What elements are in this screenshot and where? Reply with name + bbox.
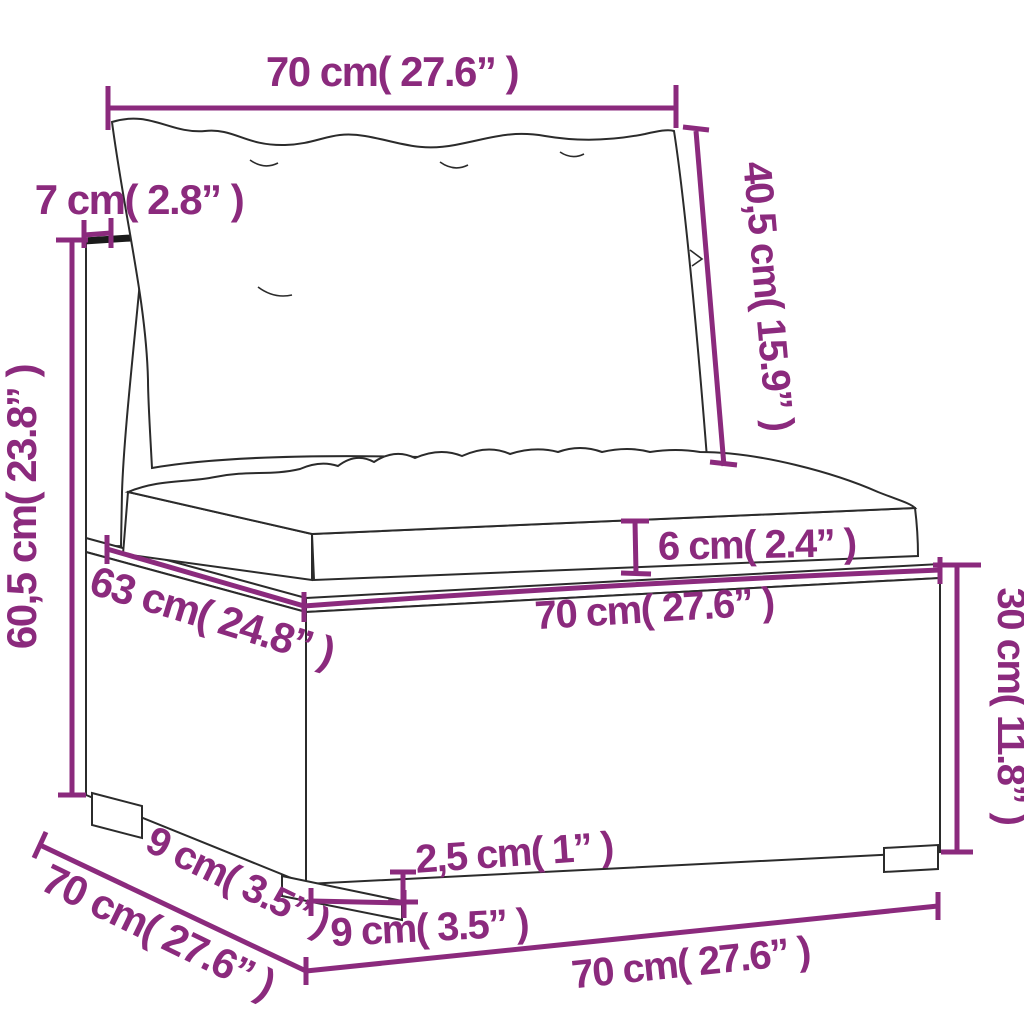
dim-armrest-top-width-label: 7 cm( 2.8” )	[35, 176, 243, 223]
dim-seat-cushion-thickness-tick	[621, 573, 651, 574]
dimension-diagram-page: 70 cm( 27.6” ) 40,5 cm( 15.9” ) 7 cm( 2.…	[0, 0, 1024, 1024]
right-leg	[884, 845, 938, 872]
back-cushion-fold-notch	[690, 250, 702, 266]
dim-base-height: 30 cm( 11.8” )	[933, 565, 1024, 852]
dim-back-cushion-height-tick	[683, 127, 709, 130]
sofa-section-dimension-sketch: 70 cm( 27.6” ) 40,5 cm( 15.9” ) 7 cm( 2.…	[0, 0, 1024, 1024]
dim-back-cushion-height-label: 40,5 cm( 15.9” )	[734, 160, 801, 432]
dim-front-leg-width-label: 9 cm( 3.5” )	[329, 901, 529, 955]
dim-total-height: 60,5 cm( 23.8” )	[0, 240, 88, 795]
dim-total-height-label: 60,5 cm( 23.8” )	[0, 365, 45, 649]
back-cushion	[112, 119, 707, 468]
dim-back-width-top-label: 70 cm( 27.6” )	[266, 48, 518, 95]
furniture-sketch	[84, 119, 940, 920]
dim-back-cushion-height-tick	[710, 462, 737, 465]
dim-back-width-top: 70 cm( 27.6” )	[108, 48, 676, 130]
dim-base-height-label: 30 cm( 11.8” )	[989, 588, 1024, 825]
dim-armrest-top-width-line	[84, 233, 111, 235]
dim-seat-cushion-thickness-label: 6 cm( 2.4” )	[658, 521, 857, 568]
dim-seat-cushion-thickness-line	[635, 521, 636, 573]
